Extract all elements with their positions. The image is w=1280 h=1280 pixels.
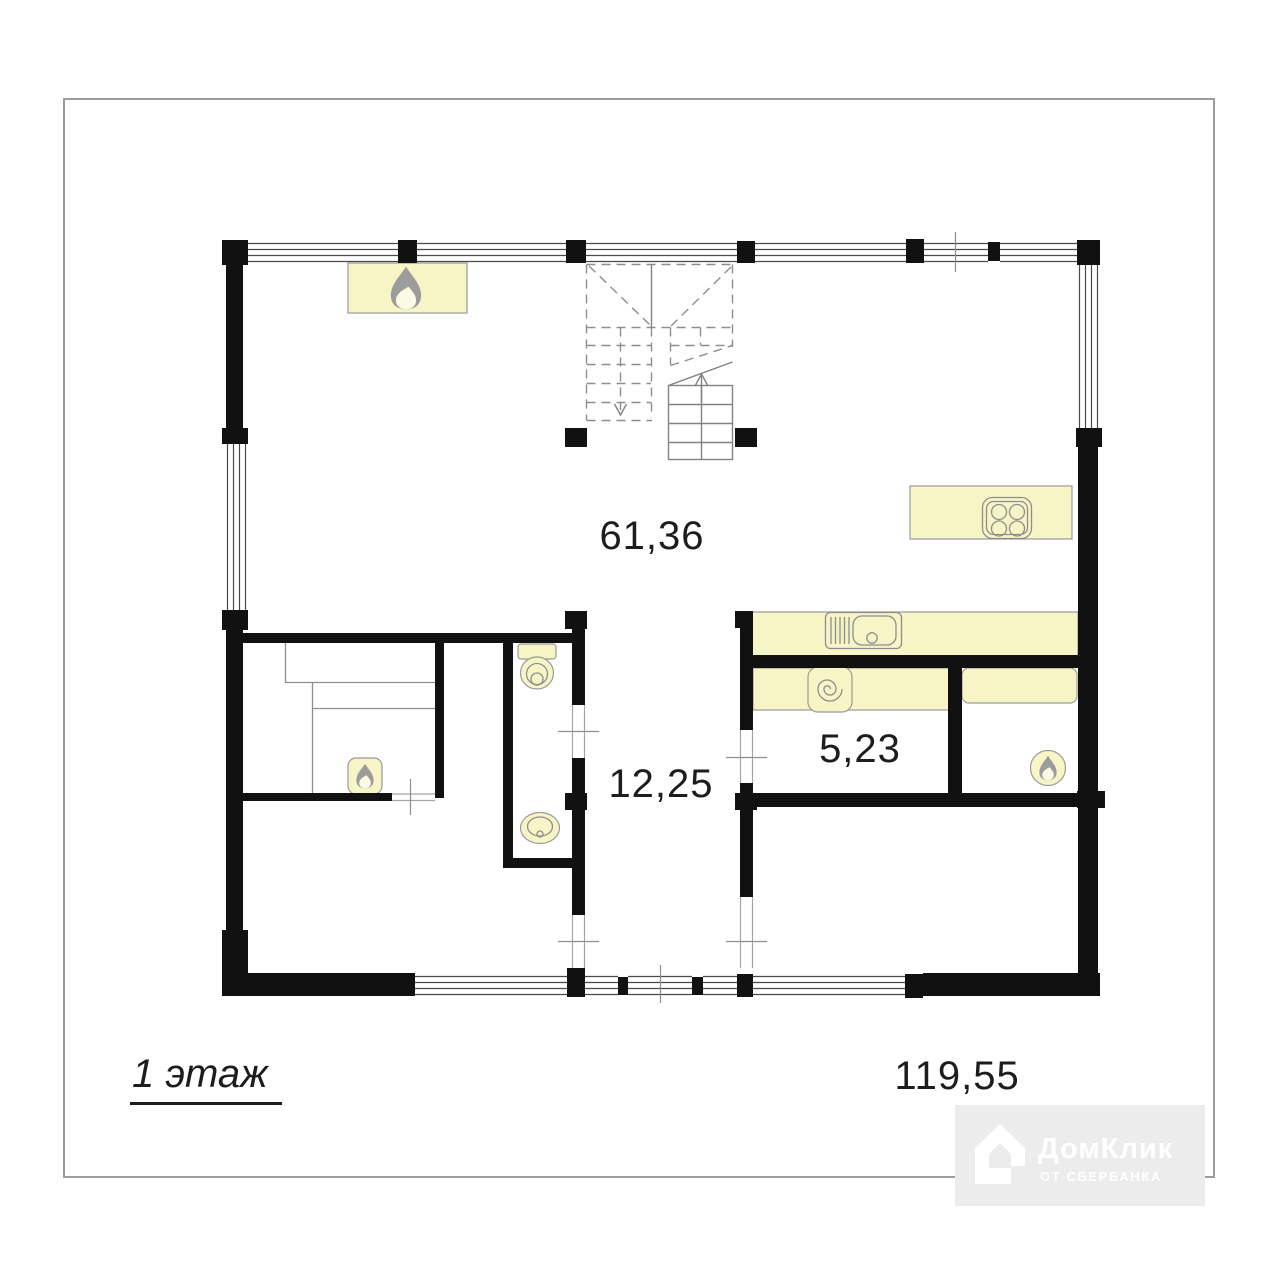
toilet-icon — [518, 644, 556, 689]
domclick-logo-icon — [969, 1118, 1031, 1190]
room-area-living: 61,36 — [599, 514, 704, 558]
watermark-subtitle: ОТ СБЕРБАНКА — [1040, 1169, 1162, 1184]
domclick-watermark: ДомКлик ОТ СБЕРБАНКА — [955, 1105, 1205, 1206]
staircase — [587, 265, 733, 460]
total-area-label: 119,55 — [894, 1054, 1019, 1098]
room-area-hallway: 12,25 — [608, 762, 713, 806]
washing-machine-icon — [808, 667, 852, 712]
washbasin-icon — [521, 813, 560, 844]
watermark-brand: ДомКлик — [1038, 1133, 1173, 1166]
boiler-flame-icon — [1031, 751, 1066, 786]
sauna-stove-flame-icon — [348, 758, 382, 794]
kitchen-counter — [752, 612, 1078, 656]
floor-label: 1 этаж — [130, 1052, 282, 1105]
floor-plan-page: 61,36 12,25 5,23 119,55 1 этаж ДомКлик О… — [0, 0, 1280, 1280]
water-heater-shelf — [962, 668, 1077, 703]
room-area-storage: 5,23 — [819, 727, 901, 771]
fireplace-icon — [348, 263, 467, 313]
cooktop-icon — [910, 486, 1072, 539]
